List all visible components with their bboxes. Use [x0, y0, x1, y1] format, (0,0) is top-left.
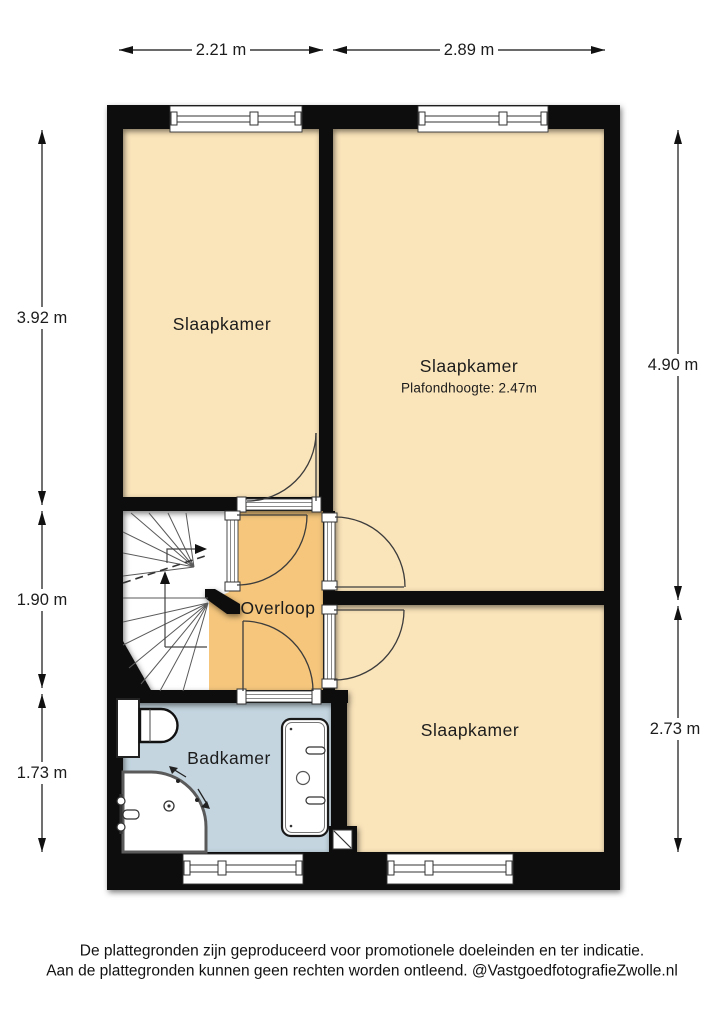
- footer-disclaimer-line-2: Aan de plattegronden kunnen geen rechten…: [46, 963, 678, 980]
- bathtub-drain-icon: [297, 772, 310, 785]
- room-label-bedroom-1: Slaapkamer: [173, 314, 271, 334]
- bathtub-handle-icon: [306, 797, 325, 804]
- room-label-bedroom-3: Slaapkamer: [421, 720, 519, 740]
- dimension-label: 3.92 m: [17, 309, 67, 327]
- dimension-left-upper: 3.92 m: [13, 130, 71, 505]
- room-ceiling-note-bedroom-2: Plafondhoogte: 2.47m: [401, 381, 537, 396]
- window-bedroom-1: [170, 106, 302, 132]
- footer-disclaimer-line-1: De plattegronden zijn geproduceerd voor …: [80, 943, 644, 960]
- door-frame-bathroom: [237, 689, 321, 704]
- room-label-landing: Overloop: [240, 598, 315, 618]
- wall-bed1-bed2: [319, 129, 333, 501]
- door-frame-bedroom-1: [237, 497, 321, 512]
- dimension-right-lower: 2.73 m: [646, 606, 706, 852]
- room-bedroom-1-floor: [123, 129, 319, 497]
- door-frame-bedroom-2: [322, 513, 337, 590]
- dimension-label: 2.73 m: [650, 720, 700, 738]
- floor-plan-canvas: Slaapkamer Slaapkamer Plafondhoogte: 2.4…: [0, 0, 724, 1024]
- door-frame-bedroom-3: [322, 605, 337, 688]
- floor-plan-page: Slaapkamer Slaapkamer Plafondhoogte: 2.4…: [0, 0, 724, 1024]
- dimension-label: 1.90 m: [17, 591, 67, 609]
- window-bedroom-2: [418, 106, 548, 132]
- bathtub-icon: [282, 719, 328, 836]
- dimension-right-upper: 4.90 m: [644, 130, 704, 600]
- dimension-label: 2.89 m: [444, 41, 494, 59]
- room-label-bathroom: Badkamer: [187, 748, 271, 768]
- dimension-top-left: 2.21 m: [119, 39, 323, 61]
- window-bedroom-3: [387, 854, 513, 884]
- room-floors: [123, 129, 604, 852]
- dimension-label: 2.21 m: [196, 41, 246, 59]
- dimension-left-lower: 1.73 m: [13, 694, 71, 852]
- dimension-label: 4.90 m: [648, 356, 698, 374]
- bathtub-handle-icon: [306, 747, 325, 754]
- dimension-label: 1.73 m: [17, 764, 67, 782]
- room-label-bedroom-2: Slaapkamer: [420, 356, 518, 376]
- wall-bed2-bed3: [333, 591, 604, 605]
- window-bathroom: [183, 854, 303, 884]
- duct-icon: [333, 830, 352, 849]
- dimension-left-middle: 1.90 m: [13, 511, 71, 688]
- door-frame-landing-stairs: [225, 511, 240, 591]
- dimension-top-right: 2.89 m: [333, 39, 605, 61]
